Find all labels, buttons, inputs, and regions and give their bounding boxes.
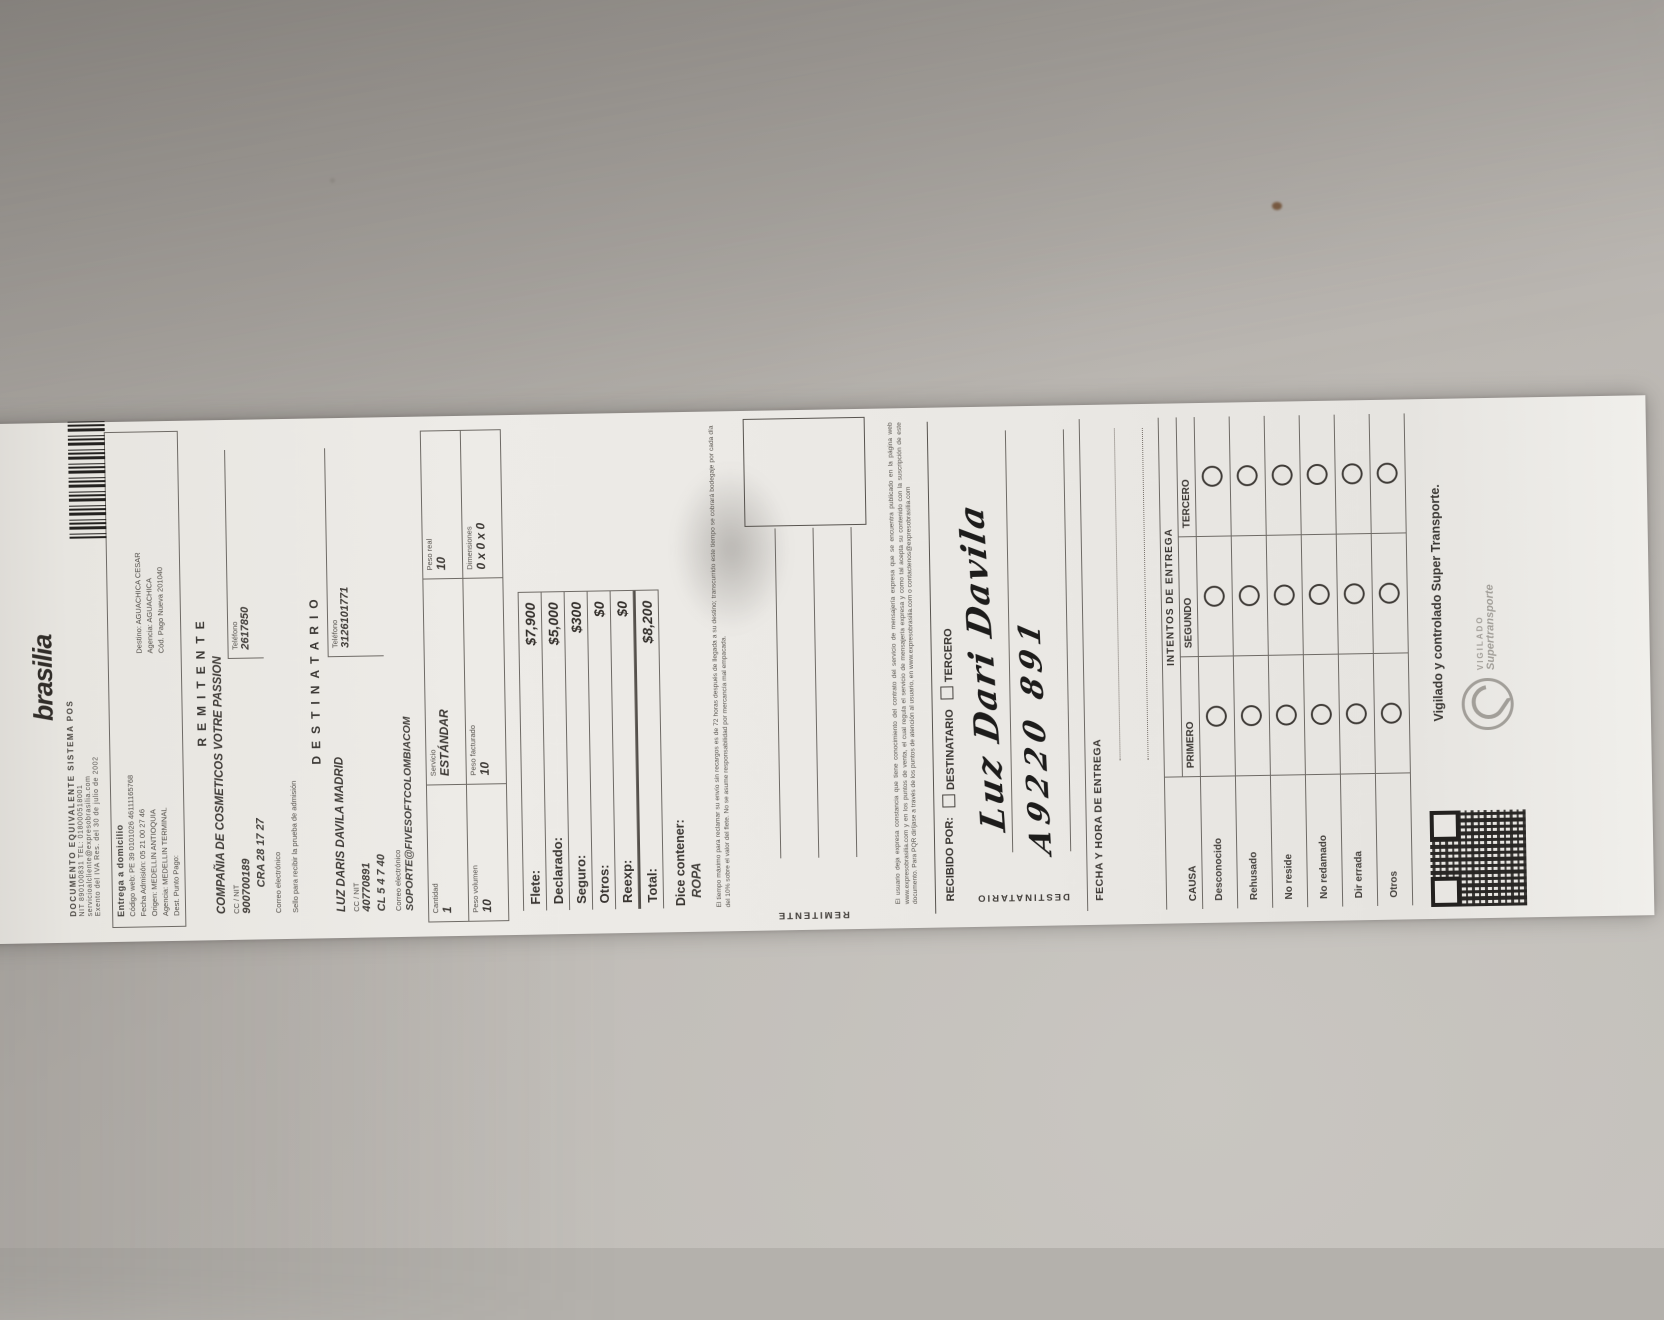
attempt-col-header: SEGUNDO: [1179, 537, 1199, 657]
handwritten-id: A9220 891: [1012, 613, 1059, 857]
supertransporte-text: Supertransporte: [1484, 584, 1497, 670]
fine-print-contract: El usuario deja expresa constancia que t…: [887, 422, 921, 904]
handwritten-name: Luz Dari Davila: [951, 500, 1014, 834]
tercero-checkbox: [940, 686, 953, 699]
delivery-section: RECIBIDO POR: DESTINATARIO TERCERO DESTI…: [926, 413, 1413, 913]
supertransporte-emblem-icon: [1461, 678, 1514, 731]
charge-label: Flete:: [527, 870, 543, 905]
attempt-circle: [1241, 705, 1262, 726]
charge-value: $0: [614, 601, 630, 617]
cause-label: Desconocido: [1213, 838, 1225, 909]
recipient-name: LUZ DARIS DAVILA MADRID: [332, 657, 348, 912]
charge-value: $7,900: [522, 603, 539, 646]
charge-label: Seguro:: [573, 855, 589, 904]
attempt-circle: [1342, 463, 1363, 484]
charges-table: Flete:$7,900 Declarado:$5,000 Seguro:$30…: [518, 589, 665, 910]
sender-email-label: Correo electrónico: [266, 419, 284, 913]
attempt-circle: [1237, 465, 1258, 486]
recipient-address: CL 5 4 7 40: [372, 656, 388, 911]
recipient-section-header: DESTINATARIO: [304, 418, 327, 938]
cause-label: No reside: [1284, 854, 1296, 908]
signature-line: [1063, 429, 1071, 851]
dest-pay-point: Dest. Punto Pago:: [168, 653, 182, 916]
service-col-value: 1: [438, 785, 454, 913]
dotted-write-line: [1142, 428, 1149, 760]
admission-proof-label: Sello para recibir la prueba de admisión: [283, 419, 301, 913]
sender-signature-row: REMITENTE: [735, 409, 884, 931]
delivery-attempts-table: INTENTOS DE ENTREGA CAUSA PRIMERO SEGUND…: [1157, 413, 1413, 909]
service-table: Cantidad1 ServicioESTÁNDAR Peso real10 P…: [420, 429, 510, 922]
qr-code: [1429, 809, 1527, 907]
surface-speck-small: [330, 178, 335, 183]
vigilado-line: Vigilado y controlado Super Transporte.: [1426, 407, 1447, 799]
charge-label: Reexp:: [619, 860, 635, 904]
recipient-signature-row-label: DESTINATARIO: [968, 891, 1078, 904]
attempt-circle: [1309, 584, 1330, 605]
brand-logo: brasilia: [24, 423, 60, 721]
stamp-box: [743, 417, 867, 527]
charge-value: $300: [568, 602, 585, 633]
attempt-col-header: PRIMERO: [1181, 657, 1201, 777]
attempt-circle: [1276, 704, 1297, 725]
attempt-circle: [1206, 706, 1227, 727]
attempt-circle: [1377, 463, 1398, 484]
recipient-signature-row: DESTINATARIO Luz Dari Davila A9220 891: [950, 419, 1087, 913]
cause-label: Rehusado: [1249, 852, 1261, 909]
dotted-write-line: [1114, 428, 1121, 760]
cause-label: No redamado: [1318, 835, 1330, 907]
signature-line: [851, 527, 858, 857]
attempt-circle: [1344, 583, 1365, 604]
destinatario-checkbox: [942, 794, 955, 807]
sender-signature-row-label: REMITENTE: [758, 908, 868, 921]
shipping-receipt: brasilia DOCUMENTO EQUIVALENTE SISTEMA P…: [0, 395, 1654, 945]
delivery-date-label: FECHA Y HORA DE ENTREGA: [1091, 739, 1106, 901]
sender-address: CRA 28 17 27: [252, 658, 268, 887]
attempt-circle: [1381, 702, 1402, 723]
charge-value: $0: [591, 601, 607, 617]
attempt-circle: [1202, 466, 1223, 487]
service-col-value: 0 x 0 x 0: [472, 430, 488, 569]
received-by-tercero-option: TERCERO: [939, 628, 955, 699]
sender-phone: 2617850: [236, 450, 251, 650]
service-col-value: 10: [478, 784, 494, 912]
service-col-value: ESTÁNDAR: [434, 579, 451, 776]
recipient-phone: 3126101771: [336, 448, 351, 648]
signature-line: [813, 528, 820, 858]
admission-box: Entrega a domicilio Código web: PE 39 01…: [104, 431, 187, 928]
barcode: [68, 418, 107, 539]
receipt-footer: Vigilado y controlado Super Transporte. …: [1404, 396, 1583, 919]
total-value: $8,200: [639, 601, 656, 644]
attempt-circle: [1204, 586, 1225, 607]
received-by-destinatario-option: DESTINATARIO: [941, 709, 958, 807]
attempt-col-header: TERCERO: [1176, 417, 1196, 537]
charge-label: Declarado:: [549, 837, 565, 904]
signature-line: [775, 528, 782, 858]
cause-label: Otros: [1389, 871, 1401, 906]
charge-label: Otros:: [596, 864, 612, 903]
attempt-circle: [1239, 585, 1260, 606]
attempt-circle: [1274, 584, 1295, 605]
total-label: Total:: [644, 868, 660, 903]
attempt-circle: [1311, 704, 1332, 725]
cause-label: Dir errada: [1354, 851, 1366, 906]
surface-speck: [1272, 202, 1282, 210]
attempt-circle: [1346, 703, 1367, 724]
delivery-date-row: FECHA Y HORA DE ENTREGA: [1078, 418, 1166, 911]
attempt-circle: [1379, 583, 1400, 604]
received-by-label: RECIBIDO POR:: [944, 817, 957, 902]
service-col-value: 10: [432, 431, 448, 570]
attempt-circle: [1272, 464, 1293, 485]
attempt-circle: [1307, 464, 1328, 485]
charge-value: $5,000: [545, 602, 562, 645]
supertransporte-logo: VIGILADO Supertransporte: [1459, 584, 1514, 730]
causa-header: CAUSA: [1183, 777, 1203, 909]
